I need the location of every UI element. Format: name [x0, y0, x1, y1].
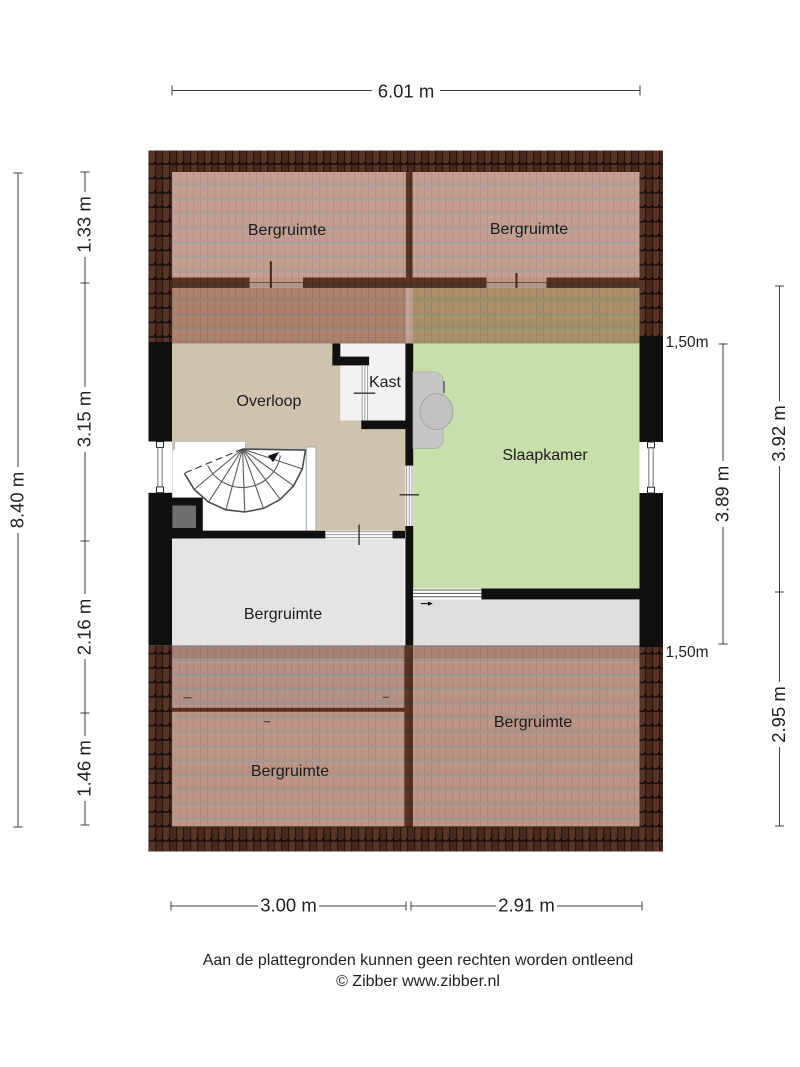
- svg-text:Bergruimte: Bergruimte: [494, 714, 572, 731]
- svg-text:3.92 m: 3.92 m: [768, 405, 789, 462]
- svg-text:Bergruimte: Bergruimte: [490, 221, 568, 238]
- svg-text:Bergruimte: Bergruimte: [244, 606, 322, 623]
- svg-text:3.89 m: 3.89 m: [712, 466, 733, 523]
- svg-text:© Zibber www.zibber.nl: © Zibber www.zibber.nl: [336, 973, 500, 990]
- svg-text:Slaapkamer: Slaapkamer: [502, 447, 588, 464]
- svg-text:Bergruimte: Bergruimte: [251, 763, 329, 780]
- svg-text:Overloop: Overloop: [237, 393, 302, 410]
- svg-text:1.46 m: 1.46 m: [74, 740, 95, 797]
- svg-text:2.95 m: 2.95 m: [768, 686, 789, 743]
- svg-text:1,50m: 1,50m: [665, 644, 708, 661]
- svg-text:3.00 m: 3.00 m: [260, 895, 317, 916]
- svg-text:1.33 m: 1.33 m: [74, 196, 95, 253]
- svg-text:Bergruimte: Bergruimte: [248, 222, 326, 239]
- svg-text:1,50m: 1,50m: [665, 334, 708, 351]
- svg-text:8.40 m: 8.40 m: [7, 472, 28, 529]
- svg-text:Kast: Kast: [369, 374, 402, 391]
- svg-text:Aan de plattegronden kunnen ge: Aan de plattegronden kunnen geen rechten…: [203, 952, 634, 969]
- svg-text:6.01 m: 6.01 m: [378, 81, 435, 102]
- svg-text:3.15 m: 3.15 m: [74, 391, 95, 448]
- svg-text:2.16 m: 2.16 m: [74, 599, 95, 656]
- svg-text:2.91 m: 2.91 m: [498, 895, 555, 916]
